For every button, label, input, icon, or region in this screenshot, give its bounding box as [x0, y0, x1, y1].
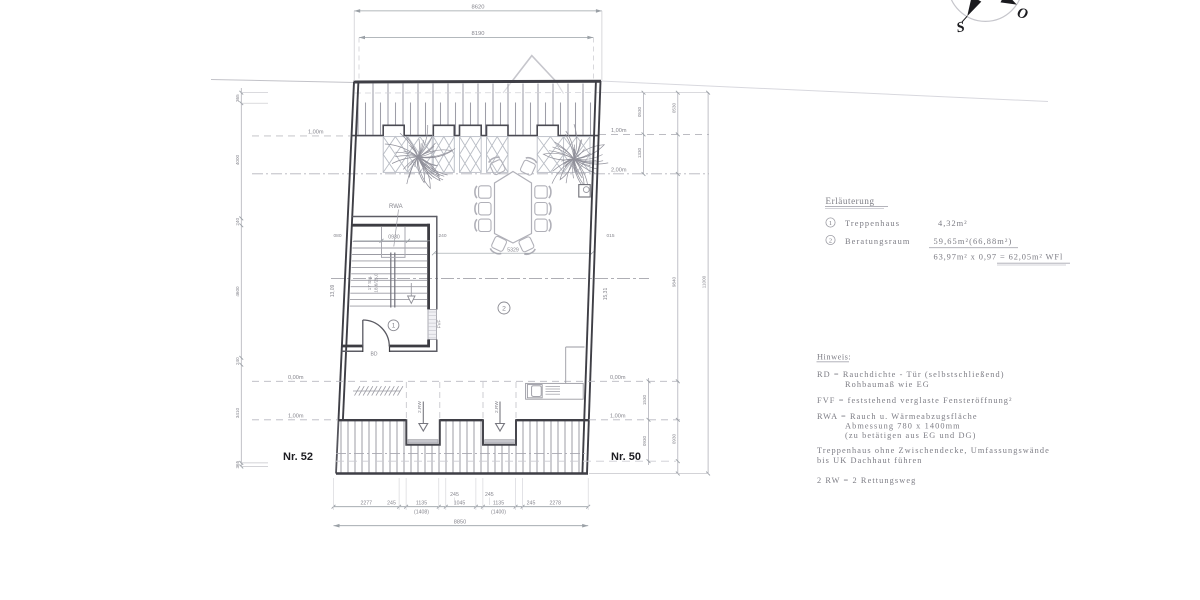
- svg-text:0,00m: 0,00m: [610, 375, 626, 381]
- svg-text:4,32m²: 4,32m²: [938, 219, 968, 228]
- svg-text:bis UK Dachhaut führen: bis UK Dachhaut führen: [817, 456, 923, 465]
- svg-text:11000: 11000: [702, 275, 707, 288]
- svg-text:59,65m²(66,88m²): 59,65m²(66,88m²): [934, 237, 1013, 246]
- svg-text:9840: 9840: [671, 276, 676, 287]
- svg-text:245: 245: [485, 492, 494, 498]
- svg-text:Nr. 52: Nr. 52: [283, 451, 313, 463]
- svg-text:8620: 8620: [472, 5, 485, 11]
- svg-text:2277: 2277: [361, 500, 373, 506]
- svg-text:245: 245: [527, 500, 536, 506]
- svg-text:0530: 0530: [637, 106, 642, 117]
- svg-text:0530: 0530: [671, 102, 676, 113]
- svg-text:3410: 3410: [235, 407, 240, 418]
- svg-text:2.RW: 2.RW: [417, 401, 423, 413]
- svg-text:Hinweis:: Hinweis:: [817, 353, 851, 362]
- svg-text:8190: 8190: [472, 31, 485, 37]
- svg-text:Treppenhaus ohne Zwischendec: Treppenhaus ohne Zwischendecke, Umfassun…: [817, 446, 1050, 455]
- svg-text:4000: 4000: [235, 154, 240, 165]
- svg-text:0,00m: 0,00m: [288, 375, 304, 381]
- svg-text:1,00m: 1,00m: [308, 130, 324, 136]
- svg-text:18,6/25,0: 18,6/25,0: [374, 273, 379, 293]
- svg-text:245: 245: [387, 500, 396, 506]
- svg-text:240: 240: [235, 357, 240, 365]
- svg-text:63,97m² x 0,97 = 62,05m² W: 63,97m² x 0,97 = 62,05m² WFl: [934, 253, 1064, 262]
- svg-text:365: 365: [235, 94, 240, 102]
- svg-text:5329: 5329: [507, 247, 519, 253]
- svg-text:1,00m: 1,00m: [288, 414, 304, 420]
- svg-text:Rohbaumaß wie EG: Rohbaumaß wie EG: [845, 380, 930, 389]
- svg-text:1: 1: [392, 323, 396, 330]
- svg-text:(1400): (1400): [491, 509, 506, 515]
- svg-text:(1408): (1408): [414, 509, 429, 515]
- svg-text:0930: 0930: [642, 435, 647, 446]
- svg-text:15,31: 15,31: [603, 288, 609, 301]
- svg-text:4600: 4600: [235, 286, 240, 297]
- svg-text:1530: 1530: [642, 394, 647, 405]
- svg-text:1135: 1135: [416, 500, 427, 506]
- svg-text:FVF = feststehend verglaste: FVF = feststehend verglaste Fensteröffnu…: [817, 396, 1013, 405]
- svg-text:1045: 1045: [454, 500, 466, 506]
- svg-text:Abmessung 780 x 1400mm: Abmessung 780 x 1400mm: [845, 421, 961, 430]
- svg-text:2: 2: [829, 238, 832, 245]
- svg-text:1: 1: [829, 220, 832, 227]
- svg-text:RWA: RWA: [389, 204, 403, 210]
- svg-text:BD: BD: [371, 352, 378, 358]
- svg-text:1,00m: 1,00m: [611, 128, 627, 134]
- svg-text:080: 080: [334, 233, 342, 239]
- svg-text:0930: 0930: [671, 433, 676, 444]
- svg-text:0930: 0930: [388, 235, 400, 241]
- svg-text:015: 015: [607, 233, 615, 239]
- svg-text:240: 240: [439, 233, 447, 239]
- svg-text:FVF: FVF: [437, 319, 442, 328]
- svg-text:245: 245: [450, 492, 459, 498]
- svg-text:2.RW: 2.RW: [494, 401, 500, 413]
- svg-text:(zu betätigen aus EG und: (zu betätigen aus EG und DG): [845, 431, 977, 440]
- svg-text:RWA = Rauch u. Wärmeabzugs: RWA = Rauch u. Wärmeabzugsfläche: [817, 412, 978, 421]
- svg-text:8850: 8850: [454, 519, 466, 525]
- svg-text:1330: 1330: [637, 147, 642, 158]
- svg-text:1135: 1135: [493, 500, 504, 506]
- svg-text:13,09: 13,09: [330, 285, 336, 298]
- svg-text:Beratungsraum: Beratungsraum: [845, 237, 910, 246]
- svg-text:17 Stg.: 17 Stg.: [367, 276, 372, 291]
- svg-text:365: 365: [235, 460, 240, 468]
- svg-text:2278: 2278: [550, 500, 562, 506]
- svg-text:Treppenhaus: Treppenhaus: [845, 219, 900, 228]
- svg-text:2,00m: 2,00m: [611, 167, 627, 173]
- svg-text:240: 240: [235, 218, 240, 226]
- svg-text:2 RW = 2 Rettungsweg: 2 RW = 2 Rettungsweg: [817, 476, 916, 485]
- svg-text:2: 2: [502, 305, 506, 312]
- svg-text:Nr. 50: Nr. 50: [611, 451, 641, 463]
- svg-text:RD = Rauchdichte - Tür (s: RD = Rauchdichte - Tür (selbstschließend…: [817, 370, 1005, 379]
- svg-text:1,00m: 1,00m: [610, 414, 626, 420]
- svg-text:Erläuterung: Erläuterung: [826, 196, 875, 206]
